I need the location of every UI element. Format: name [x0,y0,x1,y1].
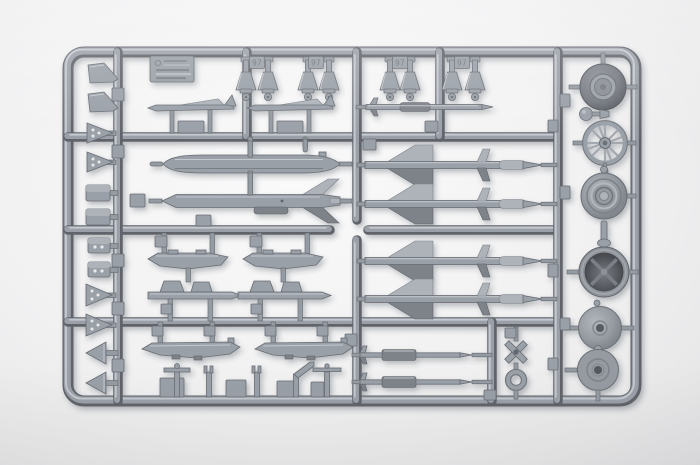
antenna-posts [160,362,341,397]
part-number-tag: 97 [393,57,408,69]
finned-missile [357,184,557,224]
sprue: 97 97 97 97 [66,50,638,401]
finned-missile [357,241,557,281]
runner-vertical-left-inner [116,51,118,401]
wheel-disc [566,300,634,350]
part-number-text: 97 [311,59,321,68]
slender-missile [356,98,493,132]
runner-horizontal-2 [67,228,558,230]
main-wheel-tire [569,53,637,110]
tank-half [255,322,353,360]
part-number-text: 97 [457,59,467,68]
part-number-tag: 97 [250,57,265,69]
runner-horizontal-1 [67,135,558,137]
antenna-post [252,366,261,397]
launch-rail [238,281,331,321]
drilled-arrow-fin [86,284,116,306]
winged-bomb [148,95,236,133]
intake-housing [567,247,638,297]
sprue-drawing: 97 97 97 97 [0,0,700,465]
tank-half [142,322,240,360]
small-missile [352,346,492,364]
runner-vertical-center [355,51,357,401]
antenna-post [204,366,213,397]
cruciform-fin [505,341,528,364]
finned-missile-group [345,139,557,346]
arrow-fin [86,372,118,394]
pylon-block [86,209,118,225]
part-number-tag: 97 [309,57,324,69]
sprue-photo: 97 97 97 97 [0,0,700,465]
pylon-block [86,185,118,201]
runner-horizontal-3 [67,320,558,322]
finned-missile [357,145,557,185]
part-number-tag: 97 [455,57,470,69]
launch-rail [148,281,241,321]
wheel-disc [565,346,619,402]
runner-vertical-right-inner [556,51,558,401]
runner-vertical-bottom-right [490,321,492,401]
weapon-pylon [148,233,228,282]
part-number-text: 97 [252,59,262,68]
finned-missile [357,279,557,319]
weapon-pylon [243,233,323,282]
winged-bomb [247,95,335,133]
small-missile [352,373,492,391]
hub-wheel [581,166,636,219]
maker-plate [150,56,194,82]
part-number-text: 97 [395,59,405,68]
cruise-missile [130,171,353,226]
